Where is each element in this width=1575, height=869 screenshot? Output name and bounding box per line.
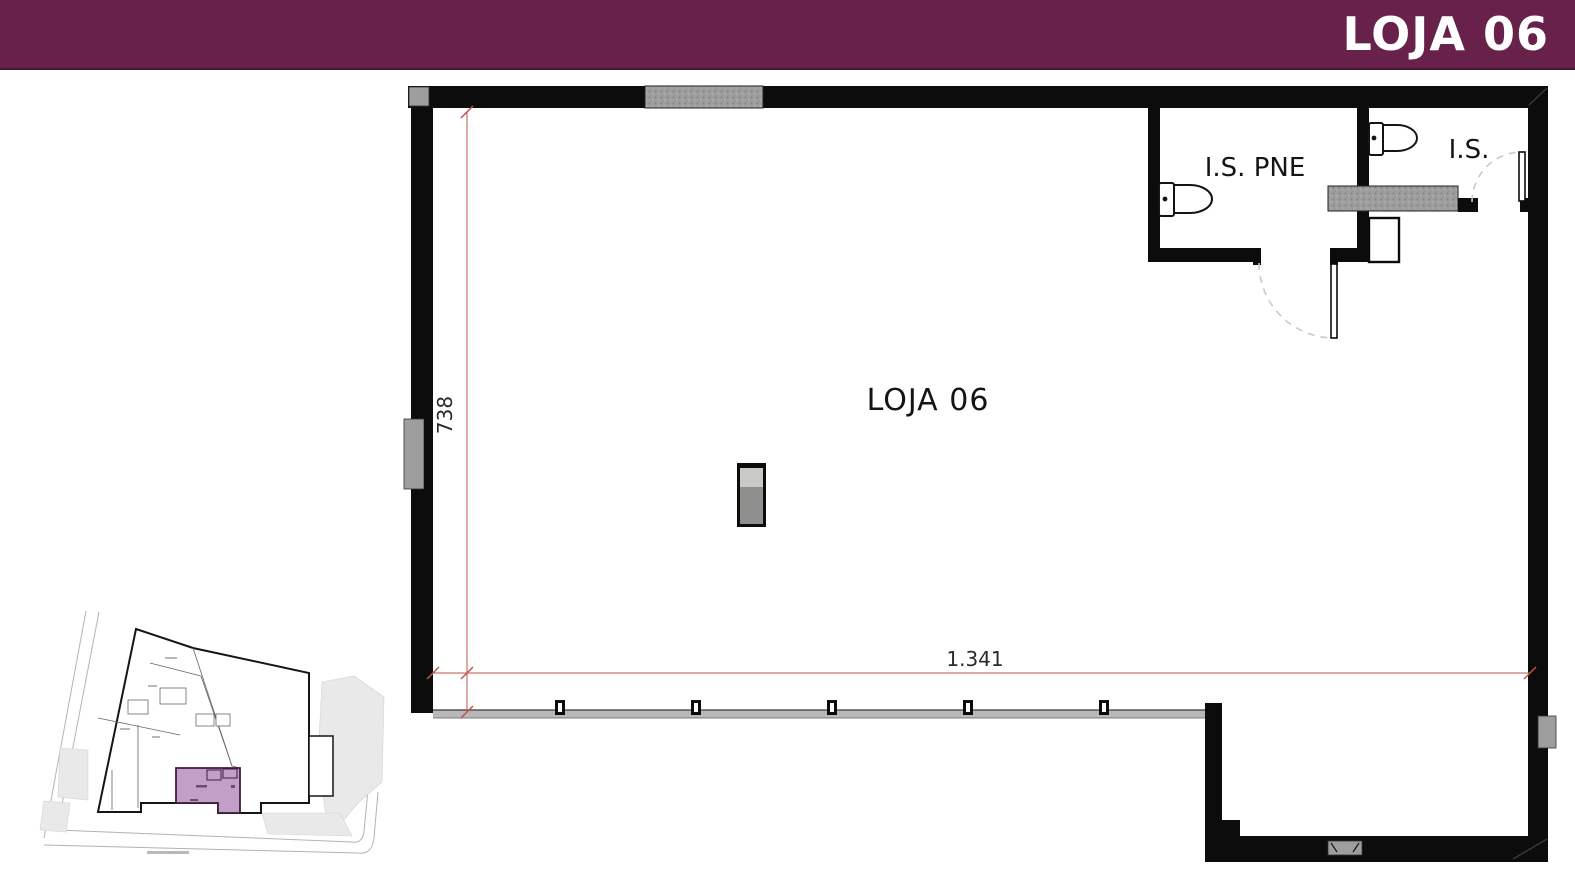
- page: LOJA 06: [0, 0, 1575, 869]
- wc-pne-door-jamb-left: [1253, 248, 1261, 265]
- unit-label: LOJA 06: [867, 383, 990, 418]
- floor-plan-drawing: I.S. PNE I.S.: [0, 0, 1575, 869]
- column-base: [740, 487, 763, 524]
- access-panel: [1328, 841, 1362, 855]
- wc-pne-label: I.S. PNE: [1205, 153, 1306, 183]
- bathroom-accessible: I.S. PNE: [1148, 108, 1338, 338]
- glazing-mullion: [691, 700, 701, 715]
- storefront-glazing: [433, 700, 1205, 718]
- toilet-flush-dot: [1163, 197, 1168, 202]
- glazing-mullion: [827, 700, 837, 715]
- column-top: [740, 468, 763, 487]
- key-plan: [40, 611, 384, 854]
- wall-top: [408, 86, 1548, 108]
- wc-divider-wall: [1357, 108, 1369, 188]
- wc-door-leaf: [1519, 152, 1525, 201]
- bathroom-standard: I.S.: [1328, 108, 1528, 262]
- toilet-flush-dot: [1372, 136, 1377, 141]
- corner-column-top-left: [409, 87, 429, 106]
- wc-pne-door-swing: [1259, 263, 1334, 338]
- shaft-box: [1369, 218, 1399, 262]
- wall-extension-step: [1222, 820, 1240, 836]
- glazing-mullion: [1099, 700, 1109, 715]
- toilet-bowl: [1383, 125, 1417, 151]
- wc-door-jamb-left: [1470, 198, 1478, 212]
- wc-label: I.S.: [1449, 135, 1490, 165]
- glazing-mullion: [555, 700, 565, 715]
- glazing-band: [433, 710, 1205, 718]
- wc-pne-door-leaf: [1331, 264, 1337, 338]
- dimension-label-width: 1.341: [946, 647, 1003, 671]
- wall-bottom: [1205, 836, 1548, 862]
- structural-column: [737, 463, 766, 527]
- key-plan-street-name-bar: [147, 851, 189, 854]
- toilet-fixture-is: [1369, 123, 1417, 155]
- wall-right-panel: [1538, 716, 1556, 748]
- sink-counter: [1328, 186, 1458, 211]
- wall-left-niche: [404, 419, 424, 489]
- floor-plan: I.S. PNE I.S.: [404, 86, 1556, 862]
- key-plan-annex: [309, 736, 333, 796]
- key-plan-highlight-unit: [176, 768, 240, 813]
- glazing-mullion: [963, 700, 973, 715]
- wall-left-narrow: [424, 419, 433, 489]
- wc-pne-wall-bottom: [1148, 248, 1260, 262]
- toilet-bowl: [1174, 185, 1212, 213]
- bottom-wall-access-panel: [1328, 841, 1362, 855]
- wall-left: [411, 86, 433, 713]
- shaft-wall-bottom: [1335, 248, 1369, 262]
- wall-top-vent: [645, 86, 763, 108]
- toilet-fixture-pne: [1159, 183, 1212, 216]
- dimension-label-height: 738: [433, 396, 457, 434]
